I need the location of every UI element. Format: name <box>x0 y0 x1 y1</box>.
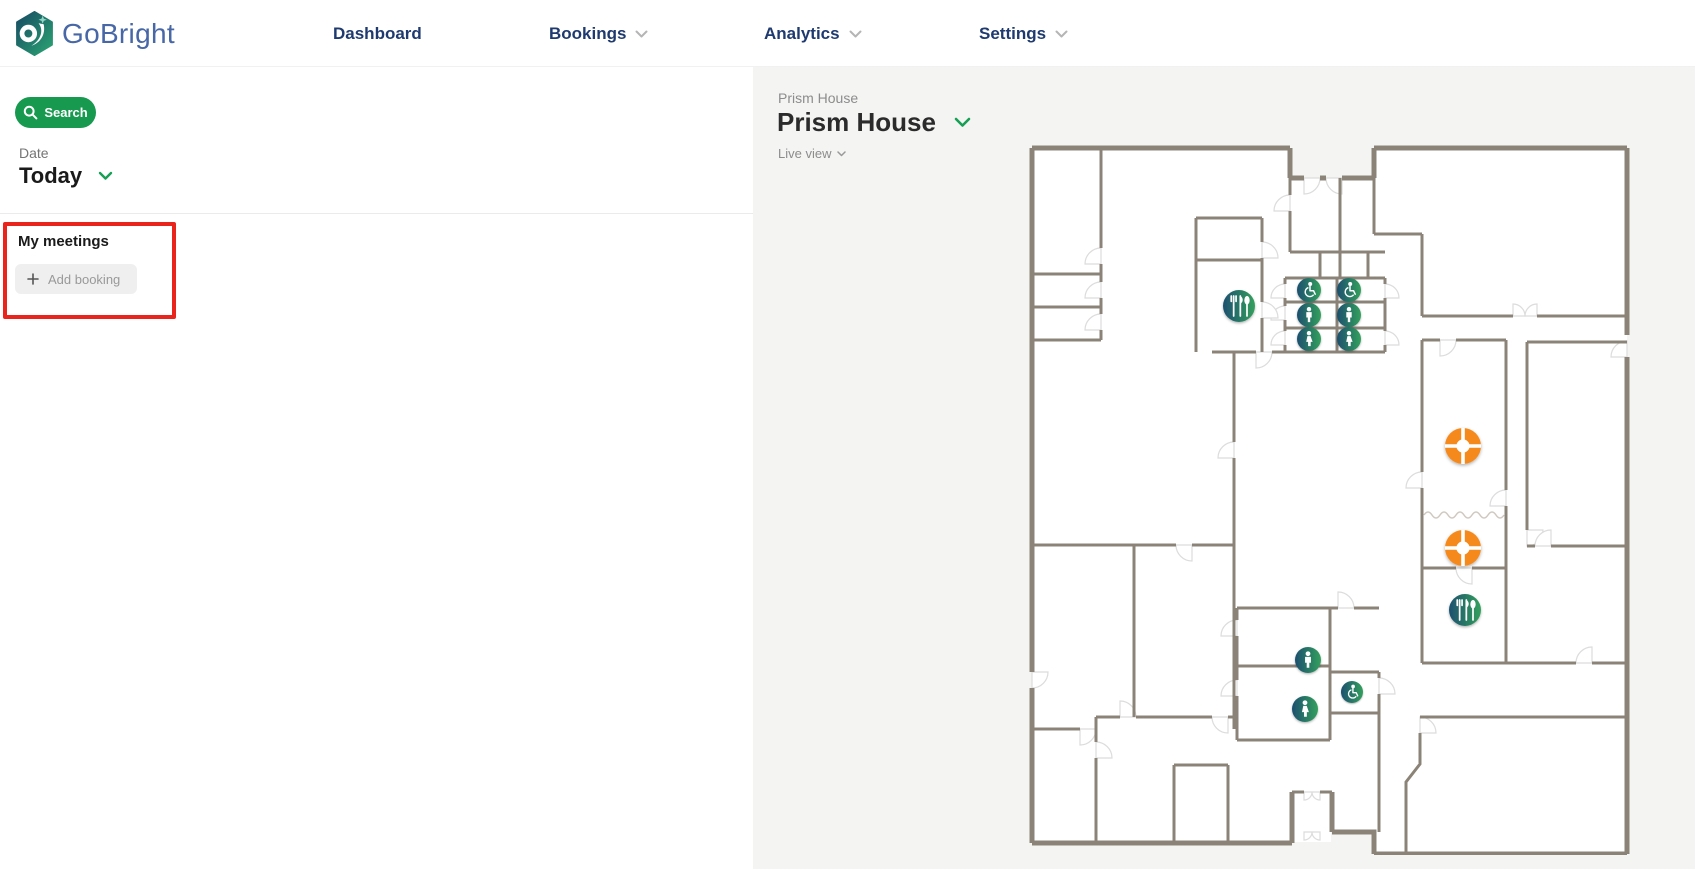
womens-toilet-icon <box>1292 696 1318 722</box>
restaurant-icon <box>1223 290 1255 322</box>
accessible-toilet-icon <box>1341 681 1363 703</box>
chevron-down-icon <box>837 151 846 157</box>
nav-bookings-label: Bookings <box>549 24 626 44</box>
brand-name: GoBright <box>62 18 175 50</box>
view-mode-label: Live view <box>778 146 831 161</box>
gobright-logo[interactable]: GoBright <box>14 11 175 56</box>
search-button[interactable]: Search <box>15 97 96 128</box>
chevron-down-icon <box>849 30 862 38</box>
nav-settings-label: Settings <box>979 24 1046 44</box>
accessible-toilet-icon <box>1337 278 1361 302</box>
mens-toilet-icon <box>1337 303 1361 327</box>
nav-analytics[interactable]: Analytics <box>764 0 862 67</box>
floor-plan[interactable] <box>1016 142 1632 855</box>
mens-toilet-icon <box>1295 647 1321 673</box>
building-selector[interactable]: Prism House <box>777 107 971 138</box>
coffee-point-icon <box>1445 428 1481 464</box>
breadcrumb: Prism House <box>778 90 858 106</box>
my-meetings-title: My meetings <box>18 233 109 250</box>
chevron-down-icon <box>98 171 113 181</box>
date-selector[interactable]: Today <box>19 163 113 189</box>
section-divider <box>0 213 753 214</box>
chevron-down-icon <box>954 117 971 128</box>
nav-analytics-label: Analytics <box>764 24 840 44</box>
nav-settings[interactable]: Settings <box>979 0 1068 67</box>
building-floor <box>1032 148 1627 854</box>
mens-toilet-icon <box>1297 303 1321 327</box>
add-booking-button[interactable]: Add booking <box>15 264 137 294</box>
gobright-app: GoBright Dashboard Bookings Analytics Se… <box>0 0 1695 869</box>
booking-sidebar: Search Date Today My meetings Add bookin… <box>0 67 753 869</box>
nav-bookings[interactable]: Bookings <box>549 0 648 67</box>
top-nav-bar: GoBright Dashboard Bookings Analytics Se… <box>0 0 1695 67</box>
nav-dashboard[interactable]: Dashboard <box>333 0 422 67</box>
accessible-toilet-icon <box>1297 278 1321 302</box>
womens-toilet-icon <box>1337 327 1361 351</box>
date-label: Date <box>19 145 49 161</box>
floor-map-panel: Prism House Prism House Live view <box>753 67 1695 869</box>
chevron-down-icon <box>1055 30 1068 38</box>
chevron-down-icon <box>635 30 648 38</box>
date-value: Today <box>19 163 82 189</box>
view-mode-selector[interactable]: Live view <box>778 146 846 161</box>
restaurant-icon <box>1449 594 1481 626</box>
search-button-label: Search <box>44 105 87 120</box>
add-booking-label: Add booking <box>48 272 120 287</box>
womens-toilet-icon <box>1297 327 1321 351</box>
nav-dashboard-label: Dashboard <box>333 24 422 44</box>
coffee-point-icon <box>1445 530 1481 566</box>
plus-icon <box>27 273 39 285</box>
gobright-logo-icon <box>14 11 55 56</box>
building-title: Prism House <box>777 107 936 138</box>
search-icon <box>23 105 38 120</box>
